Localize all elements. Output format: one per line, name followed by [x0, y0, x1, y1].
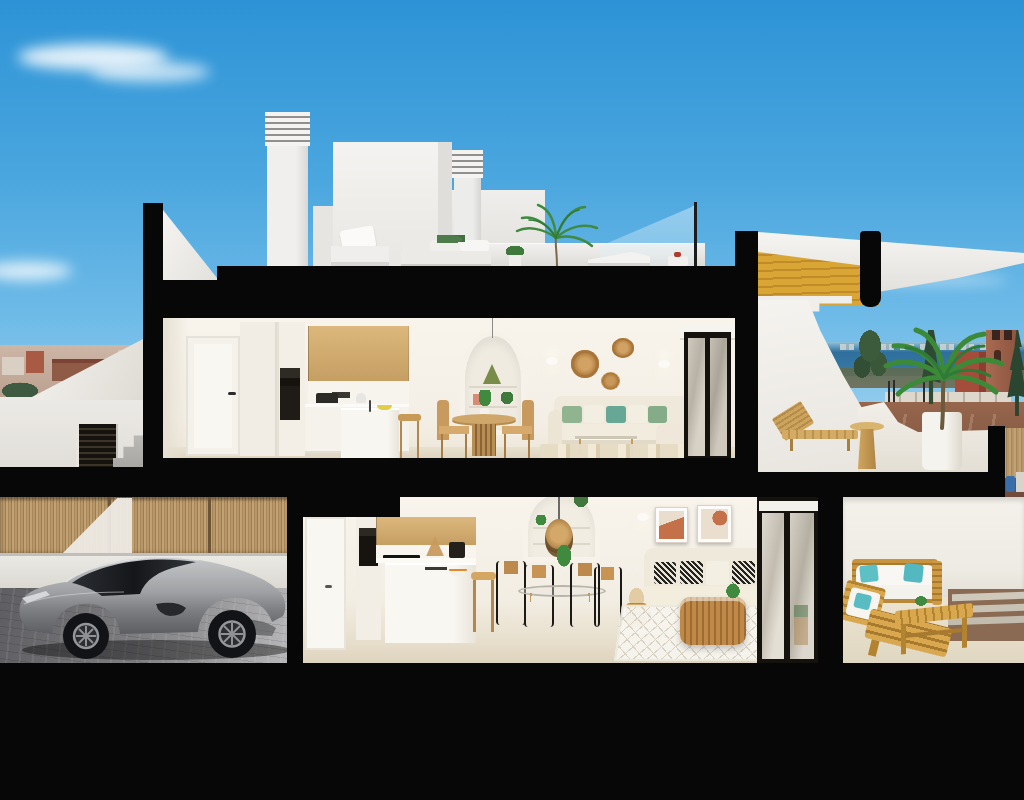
- cream-pillow-2: [628, 405, 647, 423]
- fruit-bowl: [449, 569, 467, 576]
- town-house-red: [26, 351, 44, 373]
- stair-column-rounded: [860, 231, 881, 307]
- entrance-gate-louvered: [76, 424, 116, 468]
- chimney-tall-body: [267, 146, 308, 280]
- niche-plant-2: [534, 515, 548, 527]
- sofa-arm: [548, 410, 562, 446]
- chaise-leg: [868, 639, 880, 656]
- island-faucet: [369, 400, 371, 412]
- rattan-disc-large: [571, 350, 599, 378]
- glass-dining-set: [496, 557, 616, 633]
- stool-legs: [400, 421, 419, 461]
- rattan-coffee-table: [680, 597, 746, 645]
- niche-trailing-plant: [572, 497, 590, 509]
- gdoor-blind: [759, 501, 818, 511]
- loveseat-arm: [932, 561, 942, 605]
- stool-legs-2: [473, 580, 494, 632]
- dining-chair-d: [594, 567, 622, 627]
- pendant-cord-upper: [492, 318, 493, 338]
- ground-island: [385, 563, 476, 643]
- gdoor-pane-2: [790, 513, 814, 659]
- roof-sofa: [401, 240, 491, 266]
- upper-wardrobe-panel: [240, 322, 277, 456]
- white-sign: [1016, 472, 1024, 492]
- chimney-short: [454, 150, 481, 245]
- ground-cabinets-wood: [376, 517, 476, 545]
- reflection-plant-table: [794, 605, 808, 645]
- villa-cross-section-render: [0, 0, 1024, 800]
- foundation-slab: [0, 663, 1024, 800]
- red-teapot: [674, 252, 681, 257]
- ground-sliding-doors: [757, 497, 820, 665]
- sofa-planter-greenery: [437, 234, 465, 243]
- roof-armchair: [331, 228, 389, 266]
- art-abstract-2: [701, 509, 728, 539]
- terrace-slab-edge: [735, 472, 1005, 500]
- table-plant-2: [724, 583, 742, 601]
- upper-cabinets-wood: [308, 326, 409, 381]
- roof-palm-tree: [505, 198, 610, 268]
- blue-barrel: [1006, 476, 1015, 492]
- wall-sconce: [546, 357, 558, 365]
- roof-tray: [668, 256, 688, 266]
- balustrade-post: [694, 202, 697, 266]
- sofa-seat-frame: [401, 251, 491, 267]
- carport-roof-slab: [0, 467, 163, 498]
- stool-seat-2: [471, 572, 496, 580]
- patterned-pillow-2: [680, 561, 703, 584]
- patterned-pillow: [654, 562, 676, 584]
- lounger-seat: [782, 430, 858, 439]
- cloud-mid-left: [0, 262, 72, 280]
- cream-pillow: [584, 405, 604, 423]
- upper-tall-unit: [277, 322, 305, 456]
- door-glass-pane-2: [710, 338, 727, 456]
- ground-floor-interior: [303, 497, 820, 665]
- dining-chair-right: [500, 400, 534, 458]
- roof-parapet-triangle: [163, 210, 217, 280]
- upper-backsplash: [308, 381, 409, 404]
- chair-legs-2: [504, 434, 530, 458]
- coffee-machine: [449, 542, 465, 558]
- patterned-pillow-3: [732, 561, 755, 584]
- bench-plant: [913, 595, 929, 607]
- paver: [952, 592, 1024, 602]
- chimney-short-louver-cap: [452, 150, 483, 178]
- ground-terrace: [843, 497, 1024, 665]
- sage-pillow-2: [648, 406, 667, 423]
- upper-door: [186, 336, 240, 456]
- mid-floor-slab: [163, 458, 758, 498]
- upper-floor-interior: [163, 318, 735, 462]
- rattan-disc-small: [601, 372, 620, 390]
- terrace-palm-large: [872, 318, 1022, 430]
- chimney-tall-louver-cap: [265, 112, 310, 146]
- yellow-bowl: [377, 405, 392, 410]
- teal-pillow: [859, 564, 879, 583]
- counter-kettle: [356, 393, 366, 403]
- cloud-top-left-2: [90, 62, 210, 82]
- chimney-tall: [267, 112, 308, 280]
- island-sink: [425, 567, 447, 570]
- art-frame: [655, 507, 688, 543]
- niche-shelf: [469, 386, 516, 388]
- wall-sconce-3: [637, 513, 649, 521]
- ground-door-handle: [325, 585, 332, 588]
- upper-door-handle: [228, 392, 236, 395]
- bamboo-sliver: [1002, 428, 1024, 478]
- counter-pots: [316, 393, 338, 403]
- teal-green-pillow: [606, 406, 626, 423]
- sage-pillow: [562, 406, 582, 423]
- green-lamp: [479, 364, 505, 384]
- wood-stool-upper: [398, 414, 421, 462]
- chair-seat-2: [502, 426, 532, 434]
- kitchen-soffit: [303, 497, 400, 517]
- side-table-base: [858, 429, 876, 469]
- wall-sconce-2: [658, 360, 670, 368]
- stool-seat: [398, 414, 421, 421]
- upper-sliding-door: [684, 332, 731, 462]
- rattan-disc-medium: [612, 338, 634, 358]
- art-abstract: [659, 511, 684, 539]
- carport-cut-wall: [287, 480, 303, 667]
- terrace-slab-end: [988, 426, 1005, 500]
- cream-pillow-3: [706, 561, 729, 585]
- silver-sports-car: [14, 546, 298, 666]
- teak-bench-table: [895, 601, 973, 657]
- door-mullion-cut: [818, 497, 843, 665]
- wood-stool-ground: [470, 572, 497, 634]
- kitchen-island-upper: [341, 408, 399, 462]
- built-in-oven: [280, 368, 300, 420]
- armchair-base: [331, 246, 389, 266]
- gdoor-pane: [762, 513, 784, 659]
- ground-door: [305, 517, 346, 650]
- table-plant: [476, 390, 494, 410]
- art-frame-2: [697, 505, 732, 543]
- table-pedestal: [472, 424, 496, 456]
- left-cut-column: [143, 203, 163, 498]
- teal-pillow-2: [903, 563, 924, 583]
- door-glass-pane: [688, 338, 705, 456]
- pendant-cord-ground: [558, 497, 560, 521]
- lounger-legs: [790, 439, 850, 451]
